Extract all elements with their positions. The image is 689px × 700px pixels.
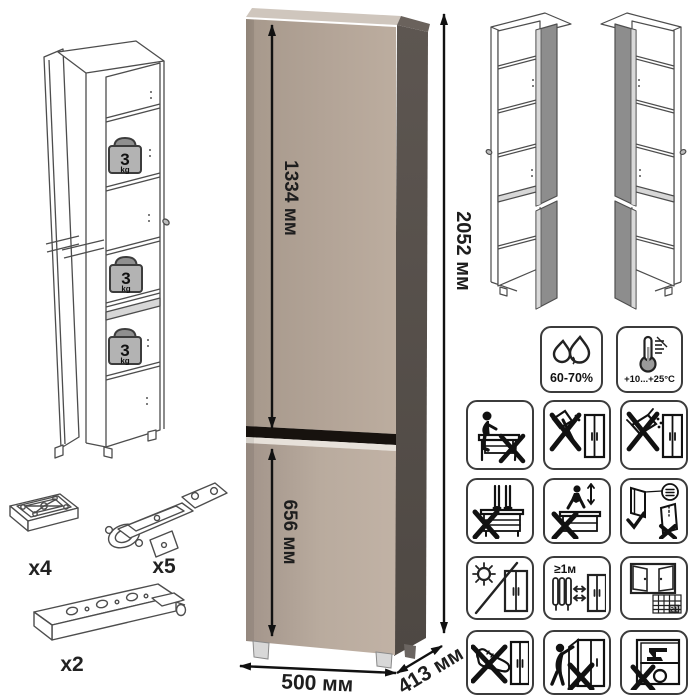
no-door-hanging-glyph [548,635,606,690]
cabinet-infographic: 3 kg 3 kg 3 kg [0,0,689,700]
no-door-hanging-icon [543,630,611,695]
thermometer-icon [627,335,673,373]
no-overloading-glyph [625,635,683,690]
width-dimension: 500 мм [281,670,354,696]
shelf-capacity-diagram: 3 kg 3 kg 3 kg [0,0,240,480]
door-open-diagram [455,0,689,340]
foot-qty: x4 [28,557,52,580]
door-adjustment-glyph [625,483,683,539]
foot-pad [10,494,78,531]
humidity-icon: 60-70% [540,326,603,393]
no-spilling-icon [620,400,688,470]
assembled-cabinet-render: 1334 мм 656 мм 2052 мм 500 мм 413 мм [230,0,480,700]
min-distance-label: ≥1м [554,562,576,576]
no-foot-pushing-icon [466,630,534,695]
side-panel [394,25,428,656]
no-sitting-icon [466,400,534,470]
cabinet-body [246,8,430,668]
load-unit: kg [121,285,130,294]
no-foot-pushing-glyph [471,635,529,690]
humidity-value: 60-70% [550,372,593,385]
upper-door [246,19,396,434]
lower-door-dimension: 656 мм [279,499,300,564]
heat-distance-icon: ≥1м [543,556,611,620]
front-right-foot [376,652,392,668]
open-cabinet-right-hinged [601,13,687,309]
temperature-range-icon: +10...+25°C [616,326,683,393]
temperature-value: +10...+25°C [624,375,675,385]
no-standing-icon [466,478,534,544]
open-cabinet-left-hinged [485,13,571,309]
hinge [105,483,227,557]
load-unit: kg [120,166,129,175]
back-right-foot [404,644,416,659]
no-jumping-icon [543,478,611,544]
no-standing-glyph [471,483,529,539]
no-sharp-tools-icon [543,400,611,470]
rail-qty: x2 [60,653,83,676]
no-overloading-icon [620,630,688,695]
heat-distance-glyph: ≥1м [548,561,606,615]
no-sharp-tools-glyph [548,406,606,464]
water-drops-icon [549,335,595,371]
hinge-qty: x5 [152,555,176,578]
no-sitting-glyph [471,406,529,464]
no-jumping-glyph [548,483,606,539]
room-ventilation-glyph: 21 [625,561,683,615]
handle-knob [162,218,171,226]
door-adjustment-icon [620,478,688,544]
avoid-sunlight-icon [466,556,534,620]
load-unit: kg [120,357,129,366]
room-ventilation-icon: 21 [620,556,688,620]
plinth-rail [34,584,186,640]
open-door-panel [44,49,104,458]
avoid-sunlight-glyph [471,561,529,615]
front-left-foot [253,641,269,659]
hardware-diagram: x4 x5 x2 [0,470,240,700]
lower-door [246,443,396,655]
no-spilling-glyph [625,406,683,464]
calendar-day-label: 21 [670,607,678,614]
upper-door-dimension: 1334 мм [280,160,301,236]
